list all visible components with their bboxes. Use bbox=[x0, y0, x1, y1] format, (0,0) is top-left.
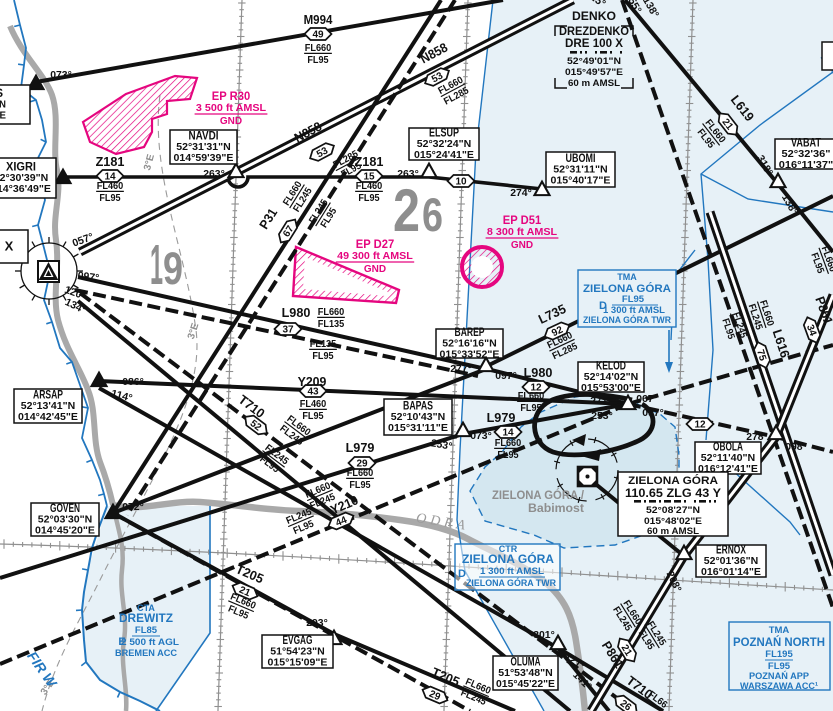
svg-text:014°59'39"E: 014°59'39"E bbox=[174, 153, 234, 164]
svg-text:ERNOX: ERNOX bbox=[716, 545, 746, 557]
svg-text:33"E: 33"E bbox=[0, 110, 6, 121]
svg-text:FL95: FL95 bbox=[358, 193, 380, 204]
svg-text:CTA: CTA bbox=[137, 603, 155, 613]
svg-text:54"N: 54"N bbox=[0, 100, 6, 111]
svg-text:EP D51: EP D51 bbox=[503, 215, 542, 227]
svg-text:FL135: FL135 bbox=[318, 319, 345, 330]
svg-text:POZNAŃ NORTH: POZNAŃ NORTH bbox=[733, 636, 825, 649]
svg-text:016°11'37": 016°11'37" bbox=[779, 160, 833, 171]
svg-text:ARSAP: ARSAP bbox=[33, 390, 63, 402]
svg-text:FL95: FL95 bbox=[312, 351, 334, 362]
svg-text:015°40'17"E: 015°40'17"E bbox=[551, 175, 611, 186]
svg-text:L980: L980 bbox=[524, 365, 553, 380]
svg-text:TMA: TMA bbox=[617, 272, 637, 282]
svg-text:FL95: FL95 bbox=[520, 403, 542, 414]
svg-text:52°32'24"N: 52°32'24"N bbox=[417, 139, 472, 150]
svg-text:6: 6 bbox=[422, 188, 443, 241]
svg-text:10: 10 bbox=[455, 177, 467, 188]
svg-text:52°14'02"N: 52°14'02"N bbox=[584, 372, 639, 383]
svg-text:FL95: FL95 bbox=[302, 411, 324, 422]
svg-text:NAVDI: NAVDI bbox=[189, 131, 219, 143]
svg-text:ZIELONA GÓRA /: ZIELONA GÓRA / bbox=[492, 487, 585, 502]
svg-text:FL95: FL95 bbox=[307, 55, 329, 66]
svg-text:253°: 253° bbox=[591, 410, 613, 422]
svg-text:52°16'16"N: 52°16'16"N bbox=[442, 339, 497, 350]
svg-text:274°: 274° bbox=[510, 187, 532, 199]
svg-text:52°32'36": 52°32'36" bbox=[781, 149, 830, 160]
svg-text:FL660: FL660 bbox=[495, 438, 522, 449]
svg-text:1: 1 bbox=[150, 233, 163, 297]
svg-text:FL460: FL460 bbox=[356, 181, 383, 192]
svg-text:FL95: FL95 bbox=[497, 450, 519, 461]
svg-text:KELOD: KELOD bbox=[596, 361, 626, 373]
svg-text:UBOMI: UBOMI bbox=[566, 153, 596, 165]
svg-text:49: 49 bbox=[312, 30, 324, 41]
svg-text:60 m AMSL: 60 m AMSL bbox=[647, 526, 699, 537]
svg-text:L979: L979 bbox=[346, 440, 375, 455]
svg-text:DRE 100 X: DRE 100 X bbox=[565, 38, 623, 50]
svg-text:014°42'45"E: 014°42'45"E bbox=[18, 412, 78, 423]
svg-text:098°: 098° bbox=[785, 441, 807, 453]
svg-text:FL460: FL460 bbox=[300, 399, 327, 410]
svg-text:ELSUP: ELSUP bbox=[429, 128, 459, 140]
svg-text:293°: 293° bbox=[306, 617, 328, 629]
svg-text:015°53'00"E: 015°53'00"E bbox=[581, 383, 641, 394]
svg-text:EP D27: EP D27 bbox=[356, 239, 394, 251]
svg-text:9: 9 bbox=[163, 243, 183, 294]
svg-text:067°: 067° bbox=[636, 393, 658, 405]
svg-text:015°24'41"E: 015°24'41"E bbox=[414, 150, 474, 161]
svg-text:D: D bbox=[458, 568, 466, 580]
svg-text:278°: 278° bbox=[746, 431, 768, 443]
svg-text:3 500 ft AMSL: 3 500 ft AMSL bbox=[196, 103, 266, 114]
svg-text:1 300 ft AMSL: 1 300 ft AMSL bbox=[480, 566, 544, 577]
svg-text:GND: GND bbox=[511, 240, 533, 251]
svg-text:ZIELONA GÓRA TWR: ZIELONA GÓRA TWR bbox=[466, 577, 556, 589]
svg-text:VABAT: VABAT bbox=[791, 138, 821, 150]
svg-text:ZIELONA GÓRA: ZIELONA GÓRA bbox=[628, 474, 718, 487]
svg-text:XIGRI: XIGRI bbox=[6, 162, 36, 174]
svg-text:Y209: Y209 bbox=[298, 374, 327, 389]
svg-text:52°10'43"N: 52°10'43"N bbox=[391, 412, 446, 423]
svg-text:016°01'14"E: 016°01'14"E bbox=[701, 567, 761, 578]
svg-text:8 300 ft AMSL: 8 300 ft AMSL bbox=[487, 227, 557, 238]
svg-text:GOVEN: GOVEN bbox=[50, 503, 80, 515]
svg-text:52°13'41"N: 52°13'41"N bbox=[21, 401, 76, 412]
svg-text:51°53'48"N: 51°53'48"N bbox=[498, 668, 553, 679]
svg-text:GND: GND bbox=[220, 116, 242, 127]
svg-text:2: 2 bbox=[393, 177, 420, 244]
svg-text:14: 14 bbox=[502, 428, 514, 439]
svg-text:FL95: FL95 bbox=[349, 480, 371, 491]
svg-text:OBOLA: OBOLA bbox=[713, 442, 743, 454]
svg-text:52°03'30"N: 52°03'30"N bbox=[38, 515, 93, 526]
svg-text:BAREP: BAREP bbox=[455, 327, 485, 339]
svg-text:073°: 073° bbox=[50, 69, 72, 81]
svg-text:015°33'52"E: 015°33'52"E bbox=[440, 349, 500, 360]
svg-text:FL195: FL195 bbox=[765, 649, 793, 660]
svg-text:52°31'31"N: 52°31'31"N bbox=[176, 142, 231, 153]
svg-text:AS: AS bbox=[0, 88, 3, 100]
svg-text:015°45'22"E: 015°45'22"E bbox=[496, 679, 555, 690]
svg-text:DENKO: DENKO bbox=[572, 11, 616, 23]
svg-text:FL135: FL135 bbox=[310, 339, 337, 350]
svg-text:FL460: FL460 bbox=[97, 181, 124, 192]
svg-text:FL660: FL660 bbox=[518, 391, 545, 402]
svg-text:BAPAS: BAPAS bbox=[403, 401, 433, 413]
svg-text:086°: 086° bbox=[122, 376, 144, 388]
svg-text:FL95: FL95 bbox=[99, 193, 121, 204]
svg-text:015°31'11"E: 015°31'11"E bbox=[388, 423, 448, 434]
svg-text:FL85: FL85 bbox=[135, 625, 158, 636]
svg-text:TMA: TMA bbox=[769, 625, 790, 636]
svg-text:ZIELONA GÓRA: ZIELONA GÓRA bbox=[462, 553, 554, 566]
svg-text:2 500 ft AGL: 2 500 ft AGL bbox=[121, 637, 179, 648]
svg-text:L980: L980 bbox=[282, 305, 311, 320]
svg-text:DREWITZ: DREWITZ bbox=[119, 613, 173, 625]
svg-text:097°: 097° bbox=[495, 370, 517, 382]
svg-text:52°01'36"N: 52°01'36"N bbox=[704, 556, 759, 567]
svg-text:52°30'39"N: 52°30'39"N bbox=[0, 173, 48, 184]
svg-text:014°45'20"E: 014°45'20"E bbox=[35, 525, 95, 536]
svg-text:ZIELONA GÓRA TWR: ZIELONA GÓRA TWR bbox=[583, 314, 671, 325]
svg-text:015°49'57"E: 015°49'57"E bbox=[565, 67, 624, 78]
svg-text:073°: 073° bbox=[470, 430, 492, 442]
svg-text:277°: 277° bbox=[590, 395, 612, 407]
svg-text:072°: 072° bbox=[122, 501, 144, 513]
svg-text:49 300 ft AMSL: 49 300 ft AMSL bbox=[337, 251, 413, 262]
svg-text:Babimost: Babimost bbox=[528, 501, 584, 515]
svg-text:263°: 263° bbox=[203, 168, 225, 180]
svg-text:014°36'49"E: 014°36'49"E bbox=[0, 184, 51, 195]
svg-text:110.65 ZLG 43 Y: 110.65 ZLG 43 Y bbox=[625, 488, 721, 500]
svg-text:X: X bbox=[5, 238, 14, 253]
svg-text:301°: 301° bbox=[533, 629, 555, 641]
svg-text:FL660: FL660 bbox=[347, 468, 374, 479]
svg-text:FL95: FL95 bbox=[622, 294, 645, 305]
svg-text:52°49'01"N: 52°49'01"N bbox=[567, 56, 621, 67]
svg-text:097°: 097° bbox=[642, 407, 664, 419]
svg-text:FL660: FL660 bbox=[318, 307, 345, 318]
svg-text:L979: L979 bbox=[487, 410, 516, 425]
svg-text:BREMEN ACC: BREMEN ACC bbox=[115, 648, 177, 659]
svg-text:60 m AMSL: 60 m AMSL bbox=[568, 78, 620, 89]
svg-text:WARSZAWA ACC¹: WARSZAWA ACC¹ bbox=[740, 681, 818, 692]
svg-text:Z181: Z181 bbox=[96, 154, 125, 169]
svg-text:52°11'40"N: 52°11'40"N bbox=[701, 453, 756, 464]
svg-text:OLUMA: OLUMA bbox=[511, 657, 541, 669]
svg-text:51°54'23"N: 51°54'23"N bbox=[270, 647, 325, 658]
svg-text:277°: 277° bbox=[450, 363, 472, 375]
svg-text:GND: GND bbox=[364, 264, 386, 275]
svg-text:EP R30: EP R30 bbox=[212, 91, 250, 103]
svg-text:015°15'09"E: 015°15'09"E bbox=[268, 657, 328, 668]
svg-text:52°31'11"N: 52°31'11"N bbox=[553, 165, 608, 176]
svg-text:37: 37 bbox=[282, 325, 294, 336]
svg-text:FL660: FL660 bbox=[305, 43, 332, 54]
svg-text:12: 12 bbox=[694, 420, 706, 431]
svg-text:EVGAG: EVGAG bbox=[283, 635, 313, 647]
svg-text:CTR: CTR bbox=[499, 544, 518, 554]
svg-text:DREZDENKO: DREZDENKO bbox=[559, 26, 629, 38]
svg-text:M994: M994 bbox=[304, 12, 333, 27]
svg-text:52°08'27"N: 52°08'27"N bbox=[646, 505, 700, 516]
